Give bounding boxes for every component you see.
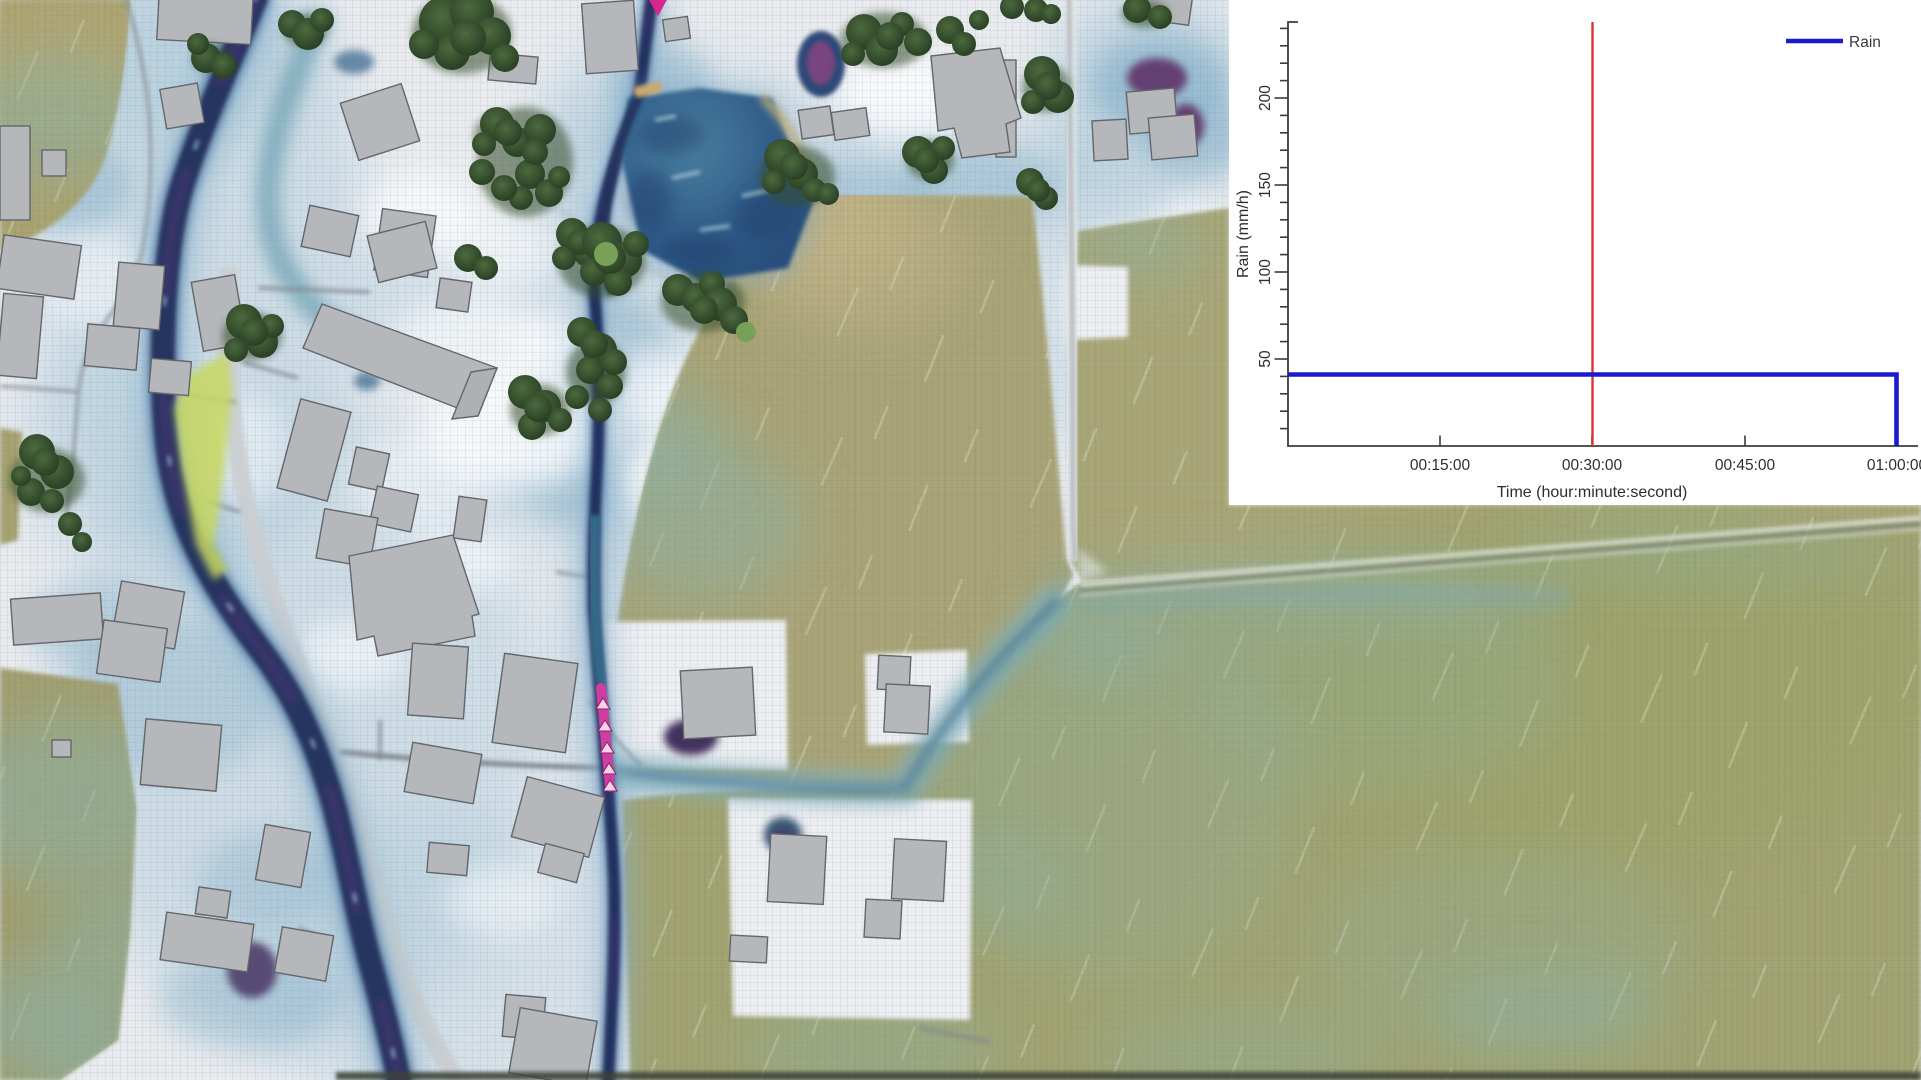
svg-text:50: 50: [1257, 350, 1274, 368]
svg-text:100: 100: [1257, 259, 1274, 285]
svg-text:00:30:00: 00:30:00: [1562, 457, 1623, 474]
svg-text:01:00:00: 01:00:00: [1867, 457, 1921, 474]
svg-text:200: 200: [1257, 85, 1274, 111]
svg-text:Rain: Rain: [1849, 34, 1881, 51]
svg-text:Rain (mm/h): Rain (mm/h): [1235, 190, 1252, 278]
svg-text:00:15:00: 00:15:00: [1410, 457, 1471, 474]
svg-text:00:45:00: 00:45:00: [1715, 457, 1776, 474]
svg-text:150: 150: [1257, 172, 1274, 198]
svg-text:Time (hour:minute:second): Time (hour:minute:second): [1497, 484, 1688, 501]
